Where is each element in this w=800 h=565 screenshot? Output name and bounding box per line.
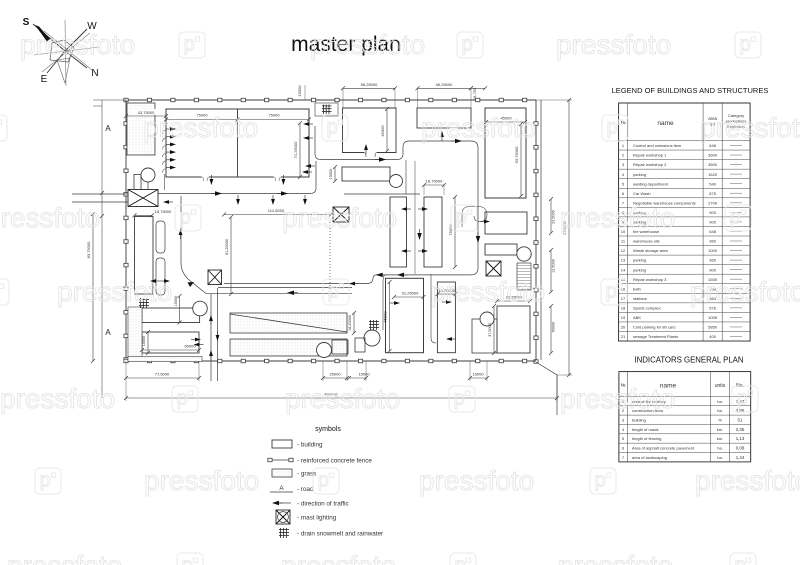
svg-text:18: 18 (621, 305, 626, 310)
svg-text:0,08: 0,08 (736, 446, 745, 451)
svg-text:Repair workshop 3: Repair workshop 3 (633, 277, 667, 282)
svg-text:75000: 75000 (383, 311, 388, 323)
svg-text:name: name (657, 120, 674, 127)
svg-text:Waste storage area: Waste storage area (633, 248, 669, 253)
svg-text:71,25000: 71,25000 (293, 141, 298, 158)
svg-text:- direction of traffic: - direction of traffic (297, 501, 349, 508)
svg-text:p: p (317, 469, 328, 491)
svg-text:Sports complex: Sports complex (633, 305, 661, 310)
svg-text:Control and omissions item: Control and omissions item (633, 143, 682, 148)
svg-text:p: p (606, 116, 617, 138)
svg-text:900: 900 (709, 210, 716, 215)
svg-text:5850: 5850 (708, 325, 718, 330)
svg-text:pressfoto: pressfoto (20, 29, 135, 60)
svg-text:Repair workshop 2: Repair workshop 2 (633, 162, 667, 167)
svg-text:50000: 50000 (552, 322, 556, 333)
svg-text:- building: - building (297, 442, 323, 449)
svg-text:18,75000: 18,75000 (426, 179, 443, 184)
svg-text:pressfoto: pressfoto (421, 112, 536, 143)
svg-text:building: building (632, 418, 646, 423)
svg-text:25000: 25000 (329, 372, 341, 377)
svg-text:INDICATORS GENERAL PLAN: INDICATORS GENERAL PLAN (634, 356, 743, 365)
svg-text:symbols: symbols (315, 426, 341, 433)
svg-text:pressfoto: pressfoto (143, 112, 258, 143)
svg-text:pressfoto: pressfoto (310, 29, 425, 60)
svg-text:93,75000: 93,75000 (514, 146, 519, 163)
svg-text:56,25000: 56,25000 (361, 82, 378, 87)
svg-text:1,44: 1,44 (736, 455, 745, 460)
svg-text:1005: 1005 (708, 315, 718, 320)
svg-text:400: 400 (709, 334, 716, 339)
svg-text:675: 675 (709, 191, 716, 196)
svg-text:p: p (183, 33, 194, 55)
svg-text:900: 900 (709, 220, 716, 225)
svg-text:- mast lighting: - mast lighting (297, 515, 337, 522)
svg-text:pressfoto: pressfoto (144, 465, 259, 496)
svg-text:area of landscaping: area of landscaping (632, 455, 667, 460)
svg-text:Car Wash: Car Wash (633, 191, 651, 196)
svg-text:12: 12 (621, 248, 626, 253)
svg-text:ha.: ha. (717, 408, 723, 413)
svg-text:welding department: welding department (633, 181, 669, 186)
svg-text:A: A (105, 124, 111, 133)
svg-text:parking: parking (633, 172, 646, 177)
svg-text:20: 20 (621, 325, 626, 330)
svg-text:ha.: ha. (717, 446, 723, 451)
svg-text:18,25000: 18,25000 (348, 315, 352, 331)
svg-text:pressfoto: pressfoto (556, 29, 671, 60)
svg-text:15000: 15000 (472, 372, 484, 377)
svg-text:p: p (455, 206, 466, 228)
svg-text:10000: 10000 (142, 336, 146, 347)
svg-text:pressfoto: pressfoto (560, 202, 675, 233)
svg-text:1000: 1000 (708, 248, 718, 253)
svg-text:ha.: ha. (717, 399, 723, 404)
svg-text:Area of asphalt concrete pavem: Area of asphalt concrete pavement (632, 446, 695, 451)
svg-text:p: p (39, 469, 50, 491)
svg-text:17: 17 (621, 296, 626, 301)
svg-text:15000: 15000 (174, 296, 178, 307)
svg-text:p: p (327, 280, 338, 302)
svg-text:ABK: ABK (633, 315, 641, 320)
svg-text:p: p (605, 280, 616, 302)
svg-text:pressfoto: pressfoto (7, 550, 122, 565)
svg-text:LEGEND OF BUILDINGS AND STRUCT: LEGEND OF BUILDINGS AND STRUCTURES (612, 86, 769, 95)
svg-text:pressfoto: pressfoto (695, 465, 800, 496)
svg-text:p: p (734, 554, 745, 565)
svg-text:648: 648 (709, 229, 716, 234)
svg-text:p: p (326, 116, 337, 138)
svg-text:Cold parking for 80 cars: Cold parking for 80 cars (633, 325, 675, 330)
svg-text:units: units (715, 383, 726, 389)
svg-text:pressfoto: pressfoto (690, 276, 800, 307)
svg-text:15000: 15000 (329, 169, 333, 180)
svg-text:parking: parking (633, 267, 646, 272)
svg-text:bath: bath (633, 286, 641, 291)
svg-text:51: 51 (738, 418, 743, 423)
svg-text:warehouse oils: warehouse oils (633, 239, 660, 244)
svg-text:pressfoto: pressfoto (430, 276, 545, 307)
svg-text:1,13: 1,13 (736, 436, 745, 441)
svg-text:sewage Treatment Plants: sewage Treatment Plants (633, 334, 678, 339)
svg-text:E: E (41, 74, 48, 85)
svg-text:parking: parking (633, 258, 646, 263)
svg-text:13: 13 (621, 258, 626, 263)
svg-text:37,5000: 37,5000 (488, 323, 492, 337)
svg-text:p: p (453, 387, 464, 409)
svg-text:12,5000: 12,5000 (552, 259, 556, 273)
svg-text:21: 21 (621, 334, 626, 339)
svg-text:pressfoto: pressfoto (700, 112, 800, 143)
svg-text:p: p (729, 206, 740, 228)
svg-text:2700: 2700 (708, 200, 718, 205)
svg-text:p: p (736, 387, 747, 409)
svg-text:2,35: 2,35 (736, 427, 745, 432)
svg-text:p: p (739, 33, 750, 55)
svg-text:p: p (461, 33, 472, 55)
svg-text:pressfoto: pressfoto (560, 383, 675, 414)
svg-text:77,5000: 77,5000 (155, 372, 170, 377)
svg-text:- road: - road (297, 486, 314, 493)
svg-text:p: p (176, 387, 187, 409)
svg-text:pressfoto: pressfoto (0, 383, 115, 414)
svg-text:ha.: ha. (717, 455, 723, 460)
svg-text:3600: 3600 (708, 153, 718, 158)
svg-text:pressfoto: pressfoto (419, 465, 534, 496)
svg-text:18,750: 18,750 (473, 88, 477, 100)
svg-text:p: p (594, 469, 605, 491)
svg-text:81,25000: 81,25000 (225, 239, 229, 255)
svg-text:km.: km. (717, 436, 723, 441)
svg-text:60000: 60000 (184, 344, 196, 349)
svg-text:3600: 3600 (708, 162, 718, 167)
svg-text:45000: 45000 (380, 125, 385, 137)
svg-text:length of fencing: length of fencing (632, 436, 661, 441)
svg-text:p: p (454, 554, 465, 565)
svg-text:%: % (718, 418, 722, 423)
svg-text:pressfoto: pressfoto (281, 550, 396, 565)
svg-text:km.: km. (717, 427, 723, 432)
svg-text:p: p (181, 554, 192, 565)
svg-text:1620: 1620 (708, 172, 718, 177)
svg-text:pressfoto: pressfoto (282, 202, 397, 233)
svg-text:31,25000: 31,25000 (402, 291, 419, 296)
svg-text:900: 900 (709, 267, 716, 272)
svg-text:stations: stations (633, 296, 647, 301)
svg-text:N: N (91, 68, 98, 79)
svg-text:14: 14 (621, 267, 626, 272)
svg-text:S: S (23, 17, 30, 28)
svg-text:15000: 15000 (358, 372, 370, 377)
svg-text:p: p (179, 206, 190, 228)
svg-text:- drain snowmelt and rainwater: - drain snowmelt and rainwater (297, 531, 383, 538)
svg-text:22,5000: 22,5000 (552, 210, 556, 224)
svg-text:648: 648 (709, 143, 716, 148)
svg-text:Repair workshop 1: Repair workshop 1 (633, 153, 667, 158)
svg-text:15000: 15000 (297, 85, 302, 97)
svg-text:18,75000: 18,75000 (155, 209, 172, 214)
svg-text:360: 360 (709, 239, 716, 244)
svg-text:length of roads: length of roads (632, 427, 658, 432)
svg-text:360: 360 (709, 258, 716, 263)
svg-text:pressfoto: pressfoto (558, 550, 673, 565)
svg-text:56,25000: 56,25000 (436, 82, 453, 87)
svg-text:75000: 75000 (268, 113, 280, 118)
svg-text:pressfoto: pressfoto (285, 383, 400, 414)
svg-text:pressfoto: pressfoto (57, 276, 172, 307)
svg-text:pressfoto: pressfoto (0, 202, 100, 233)
svg-text:540: 540 (709, 181, 716, 186)
svg-text:- reinforced concrete fence: - reinforced concrete fence (297, 458, 372, 465)
svg-text:19: 19 (621, 315, 626, 320)
svg-text:83,75000: 83,75000 (86, 241, 91, 258)
svg-text:A: A (279, 485, 284, 492)
svg-text:A: A (105, 328, 111, 337)
